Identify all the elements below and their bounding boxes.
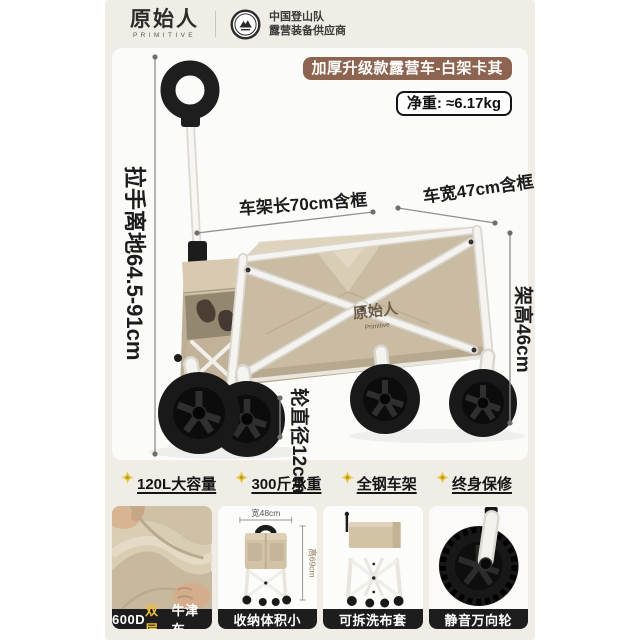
sparkle-icon xyxy=(235,471,248,484)
feature-capacity: 120L大容量 xyxy=(121,473,216,494)
gallery-card-removable-cover: 可拆洗布套 xyxy=(323,506,423,629)
gallery-row: 600D双层牛津布 宽48cm 高69cm xyxy=(112,506,528,629)
gallery-card-folded: 宽48cm 高69cm xyxy=(218,506,318,629)
title-banner: 加厚升级款露营车-白架卡其 xyxy=(303,57,513,80)
brand-subtitle: PRIMITIVE xyxy=(133,32,196,39)
feature-load: 300斤承重 xyxy=(235,473,321,494)
sparkle-icon xyxy=(121,471,134,484)
caption-suffix: 牛津布 xyxy=(172,600,212,629)
fabric-closeup-image xyxy=(112,506,212,609)
brand-logo: 原始人 PRIMITIVE xyxy=(130,9,199,39)
feature-label: 120L大容量 xyxy=(137,473,216,494)
net-weight-badge: 净重: ≈6.17kg xyxy=(396,91,512,116)
sparkle-icon xyxy=(436,471,449,484)
badge-line1: 中国登山队 xyxy=(269,10,346,24)
caption-prefix: 600D xyxy=(112,612,145,627)
feature-label: 300斤承重 xyxy=(251,473,321,494)
feature-steel-frame: 全钢车架 xyxy=(341,473,417,494)
folded-wagon-image: 宽48cm 高69cm xyxy=(218,506,318,609)
badge-line2: 露营装备供应商 xyxy=(269,24,346,38)
gallery-card-wheel: 静音万向轮 xyxy=(429,506,529,629)
removable-cover-image xyxy=(323,506,423,609)
features-row: 120L大容量 300斤承重 全钢车架 终身保修 xyxy=(112,460,528,506)
divider xyxy=(215,11,216,37)
caption-highlight: 双层 xyxy=(145,600,172,629)
feature-warranty: 终身保修 xyxy=(436,473,512,494)
gallery-caption: 收纳体积小 xyxy=(218,609,318,629)
gallery-caption: 600D双层牛津布 xyxy=(112,609,212,629)
product-infographic-page: 原始人 PRIMITIVE 中国登山队 露营装备供应商 xyxy=(0,0,640,640)
dim-handle-height-label: 拉手离地64.5-91cm xyxy=(121,166,147,360)
wheel-rear-far xyxy=(449,356,517,437)
content-card: 原始人 PRIMITIVE 中国登山队 露营装备供应商 xyxy=(105,0,535,640)
gallery-caption: 可拆洗布套 xyxy=(323,609,423,629)
brand-name: 原始人 xyxy=(130,9,199,31)
feature-label: 全钢车架 xyxy=(357,473,417,494)
sparkle-icon xyxy=(341,471,354,484)
folded-height-label: 高69cm xyxy=(307,548,317,577)
feature-label: 终身保修 xyxy=(452,473,512,494)
dim-frame-height-label: 架高46cm xyxy=(512,286,533,373)
badge-text: 中国登山队 露营装备供应商 xyxy=(269,10,346,38)
gallery-caption: 静音万向轮 xyxy=(429,609,529,629)
header: 原始人 PRIMITIVE 中国登山队 露营装备供应商 xyxy=(105,0,535,48)
hero-section: 原始人 Primitive xyxy=(112,48,528,460)
mountaineering-badge-icon xyxy=(230,9,261,40)
folded-width-label: 宽48cm xyxy=(251,508,280,518)
gallery-card-fabric: 600D双层牛津布 xyxy=(112,506,212,629)
wheel-closeup-image xyxy=(429,506,529,609)
